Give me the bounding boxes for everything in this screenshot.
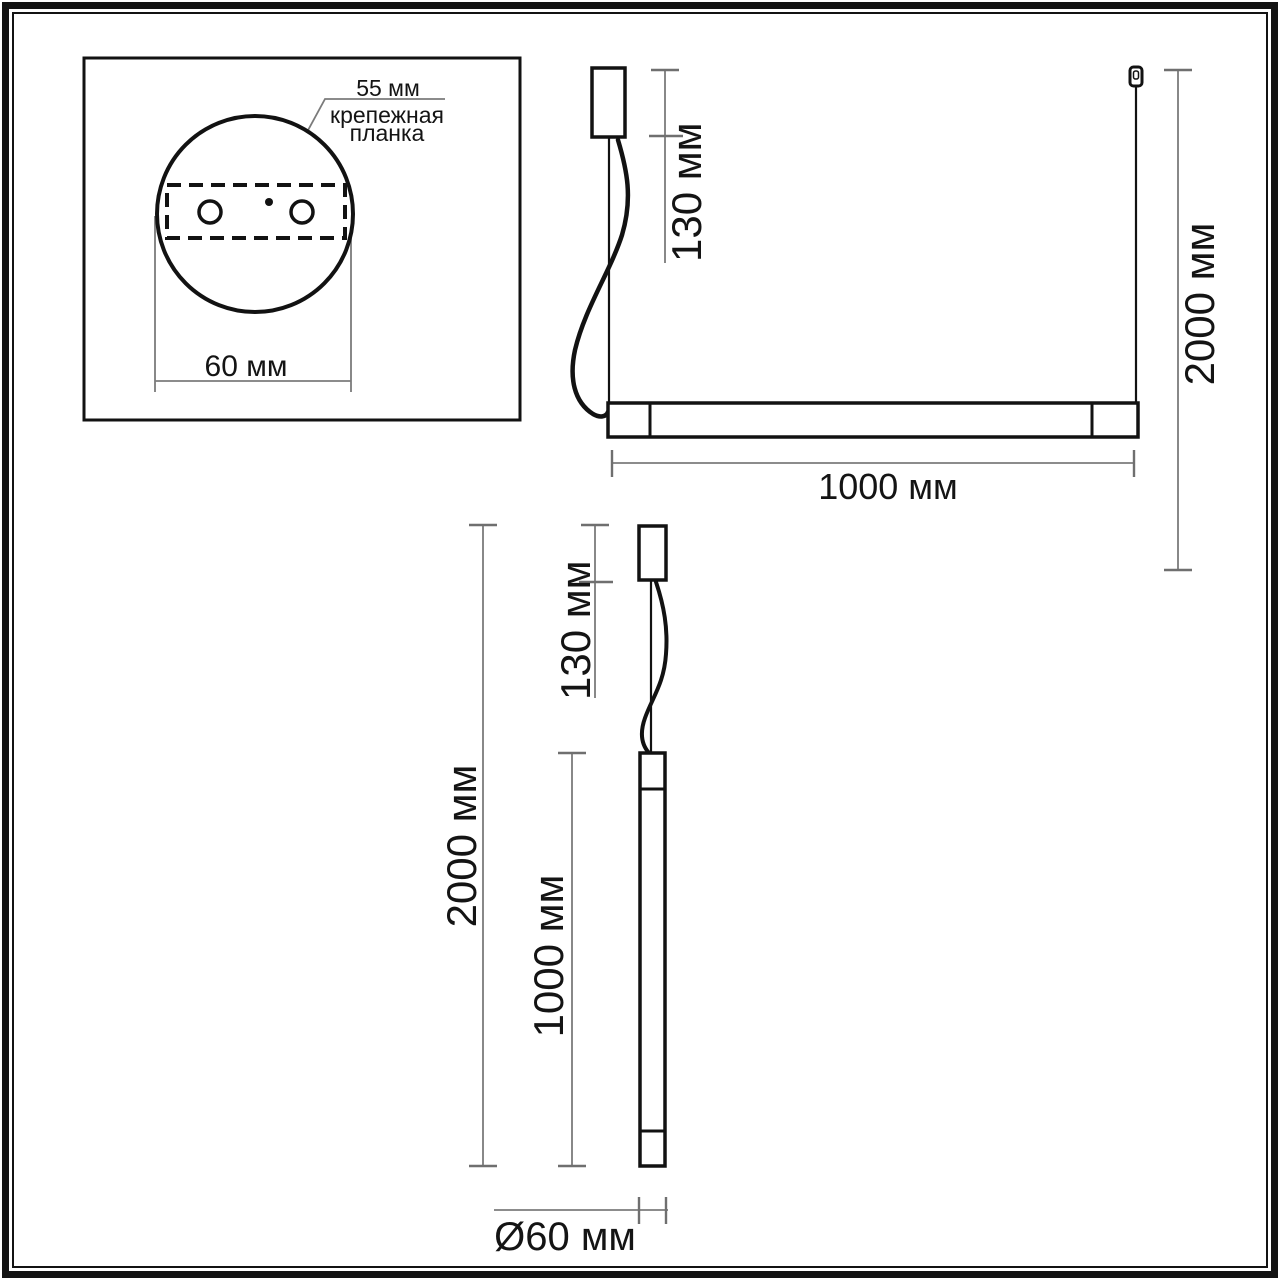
v-dim-1000-label: 1000 мм xyxy=(525,875,572,1038)
vertical-fixture-view: 2000 мм 130 мм 1000 мм xyxy=(438,525,668,1259)
dim-label-60mm: 60 мм xyxy=(205,350,288,383)
mount-plate-label-line2: планка xyxy=(350,120,425,146)
drawing-canvas: 55 мм крепежная планка 60 мм 130 мм 2000… xyxy=(0,0,1280,1280)
canopy-front xyxy=(592,68,625,137)
canopy-circle xyxy=(157,116,353,312)
fixture-bar xyxy=(608,403,1138,437)
horizontal-fixture-view: 130 мм 2000 мм xyxy=(573,67,1223,570)
leader-dot xyxy=(265,198,273,206)
detail-view: 55 мм крепежная планка 60 мм xyxy=(84,58,520,420)
v-dim-130-label: 130 мм xyxy=(552,561,599,701)
v-dim-diameter-label: Ø60 мм xyxy=(494,1215,636,1259)
canopy-side xyxy=(639,526,666,580)
cord-grip xyxy=(1130,67,1142,86)
v-dim-2000-label: 2000 мм xyxy=(438,765,485,928)
power-cable xyxy=(573,140,628,416)
technical-drawing-page: 55 мм крепежная планка 60 мм 130 мм 2000… xyxy=(0,0,1280,1280)
power-cable-vertical xyxy=(642,582,667,753)
fixture-tube xyxy=(640,753,665,1166)
h-dim-1000-label: 1000 мм xyxy=(818,466,958,507)
dim-label-55mm: 55 мм xyxy=(356,75,420,101)
h-dim-130-label: 130 мм xyxy=(663,123,710,263)
h-dim-2000-label: 2000 мм xyxy=(1176,223,1223,386)
